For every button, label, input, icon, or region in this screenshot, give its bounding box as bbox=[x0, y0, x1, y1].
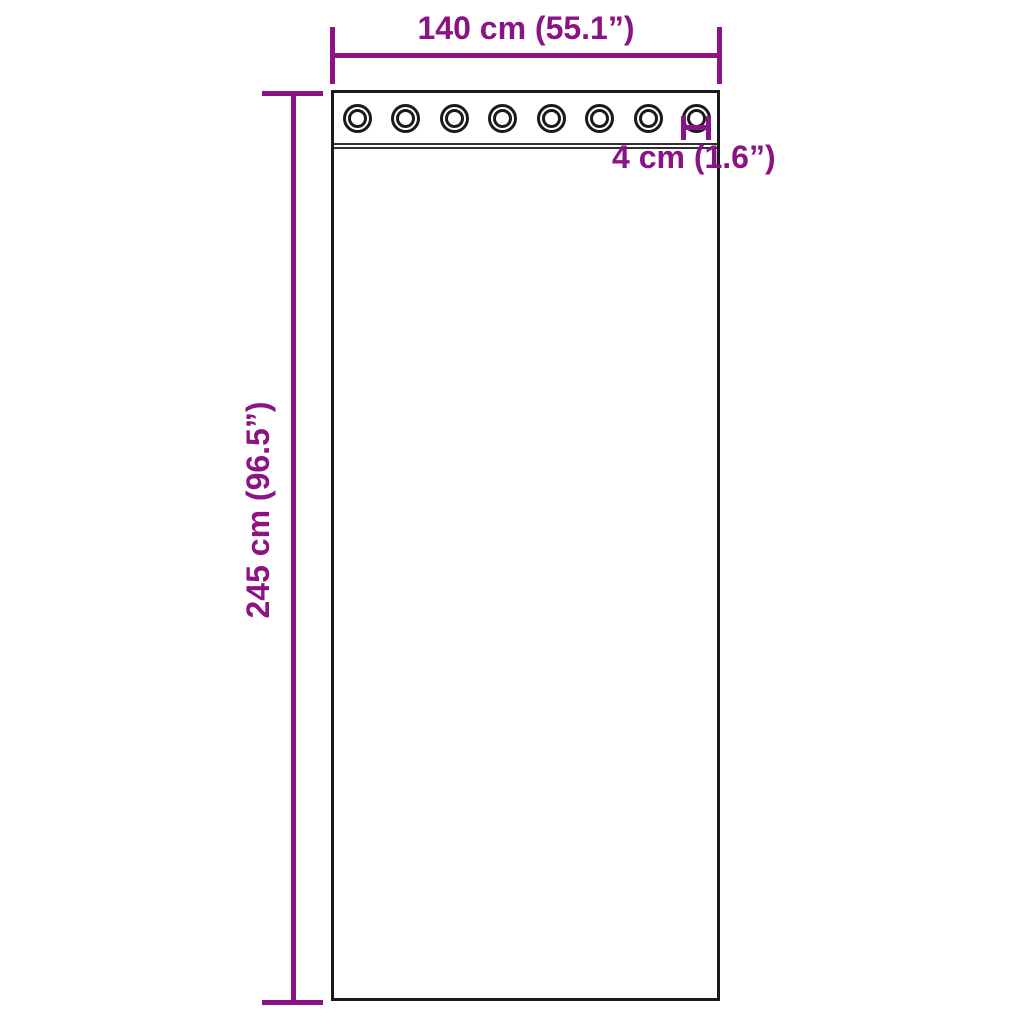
grommet-dimension-tick-right bbox=[706, 116, 711, 140]
grommet-ring-5 bbox=[537, 104, 566, 133]
grommet-hole-4 bbox=[493, 109, 512, 128]
grommet-ring-2 bbox=[391, 104, 420, 133]
curtain-panel-outline bbox=[331, 90, 720, 1001]
grommet-hole-2 bbox=[396, 109, 415, 128]
grommet-row bbox=[343, 104, 711, 133]
height-dimension-label: 245 cm (96.5”) bbox=[242, 401, 274, 618]
grommet-hole-5 bbox=[542, 109, 561, 128]
height-dimension-cap-bottom bbox=[262, 1000, 323, 1005]
grommet-hole-7 bbox=[639, 109, 658, 128]
height-dimension-cap-top bbox=[262, 91, 323, 96]
grommet-ring-6 bbox=[585, 104, 614, 133]
width-dimension-line bbox=[332, 53, 720, 58]
width-dimension-label: 140 cm (55.1”) bbox=[332, 12, 720, 44]
grommet-hole-3 bbox=[445, 109, 464, 128]
grommet-hole-1 bbox=[348, 109, 367, 128]
grommet-ring-1 bbox=[343, 104, 372, 133]
grommet-dimension-tick-left bbox=[681, 116, 686, 140]
grommet-ring-7 bbox=[634, 104, 663, 133]
grommet-hole-6 bbox=[590, 109, 609, 128]
curtain-dimension-diagram: 140 cm (55.1”) 245 cm (96.5”) 4 cm (1.6”… bbox=[0, 0, 1024, 1024]
grommet-dimension-label: 4 cm (1.6”) bbox=[612, 141, 776, 173]
grommet-ring-4 bbox=[488, 104, 517, 133]
height-dimension-line bbox=[291, 91, 296, 1005]
grommet-ring-3 bbox=[440, 104, 469, 133]
